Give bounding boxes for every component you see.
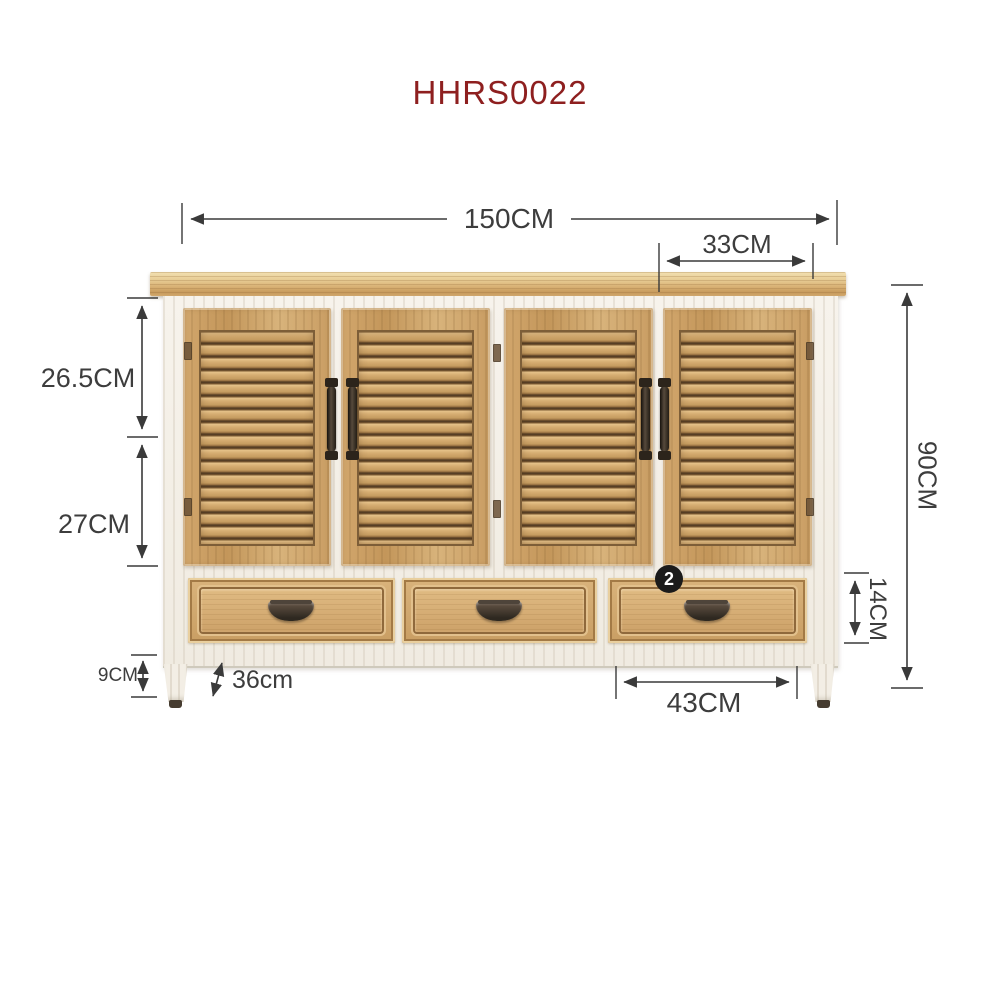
louver-door-3 <box>504 308 653 566</box>
hinge <box>493 344 501 362</box>
louver-panel <box>199 330 315 546</box>
dim-label-lower-door-height: 27CM <box>50 509 138 540</box>
louver-door-2 <box>341 308 490 566</box>
dim-label-leg-height: 9CM <box>78 665 138 687</box>
louver-panel <box>357 330 474 546</box>
louver-panel <box>520 330 637 546</box>
dim-label-right-door-width: 33CM <box>687 229 787 260</box>
louver-door-1 <box>183 308 331 566</box>
cabinet-top-board <box>150 272 846 296</box>
door-bar-handle <box>641 386 650 452</box>
callout-badge-2: 2 <box>655 565 683 593</box>
hinge <box>184 498 192 516</box>
leg-foot <box>169 700 182 708</box>
cabinet-leg-right <box>809 664 836 702</box>
product-code-title: HHRS0022 <box>350 74 650 112</box>
leg-foot <box>817 700 830 708</box>
door-bar-handle <box>660 386 669 452</box>
hinge <box>806 498 814 516</box>
hinge <box>806 342 814 360</box>
hinge <box>184 342 192 360</box>
dim-label-drawer-height: 14CM <box>863 564 891 654</box>
dim-label-drawer-width: 43CM <box>654 687 754 719</box>
louver-panel <box>679 330 796 546</box>
door-bar-handle <box>348 386 357 452</box>
dim-label-total-width: 150CM <box>447 202 571 235</box>
louver-door-4 <box>663 308 812 566</box>
product-dimension-diagram: HHRS0022 <box>0 0 1000 1000</box>
dim-label-upper-door-height: 26.5CM <box>38 363 138 394</box>
dim-label-total-height: 90CM <box>912 416 943 536</box>
hinge <box>493 500 501 518</box>
dim-label-depth: 36cm <box>232 666 332 695</box>
door-bar-handle <box>327 386 336 452</box>
cabinet-leg-left <box>162 664 189 702</box>
